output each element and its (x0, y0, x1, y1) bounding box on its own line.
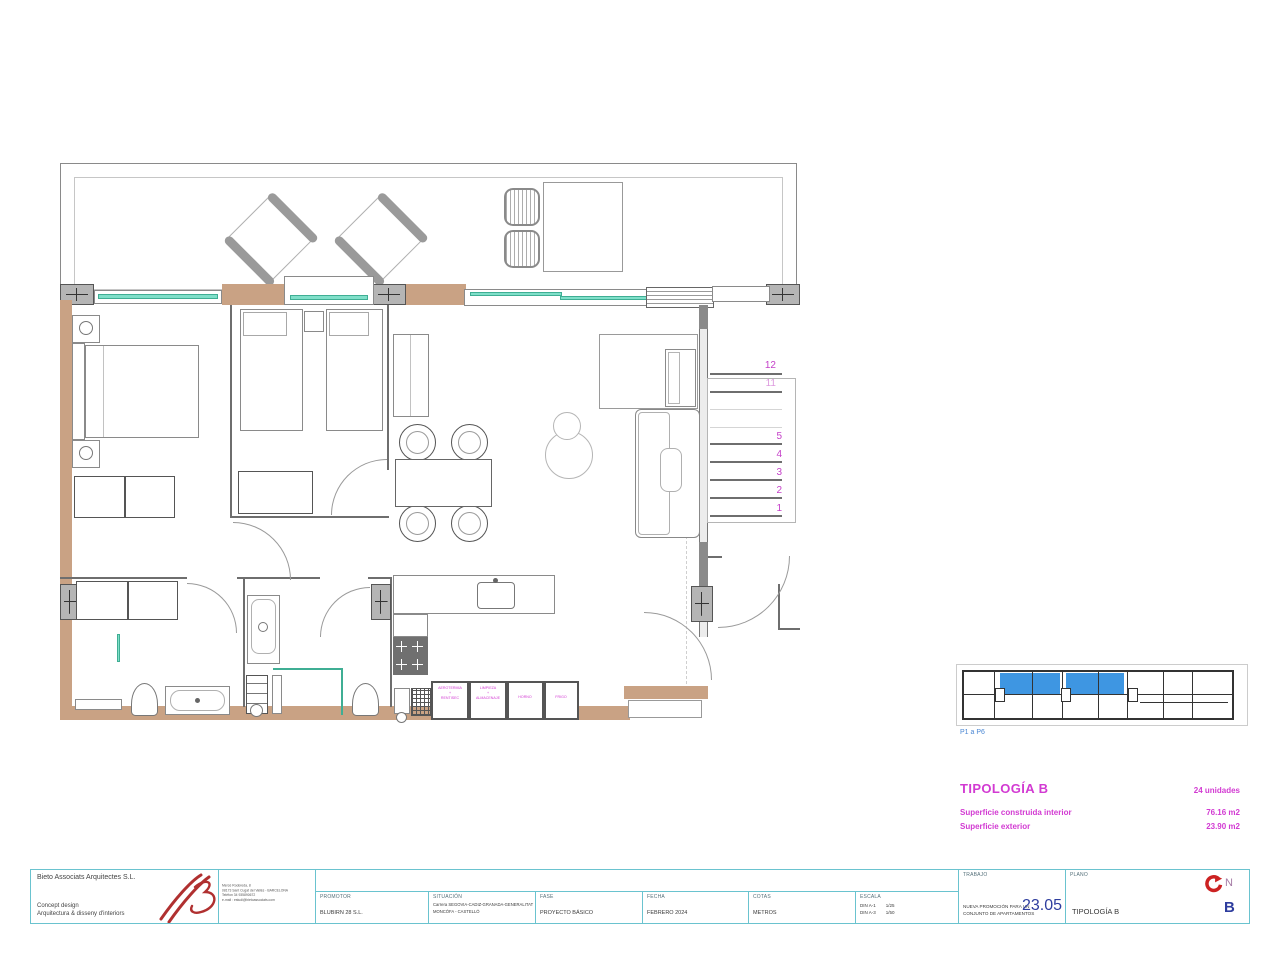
stair-tread (710, 373, 782, 375)
cooktop (393, 637, 428, 675)
title-block-divider (315, 869, 316, 924)
drawing-sheet: 12 11 5 4 3 2 1 (0, 0, 1280, 960)
stair-tread (710, 409, 782, 410)
dining-chair (399, 505, 436, 542)
door-arc (233, 522, 291, 580)
architect-signature (155, 871, 221, 923)
door-arc (320, 587, 370, 637)
surface-value: 23.90 m2 (1160, 822, 1240, 831)
field-label: ESCALA (860, 894, 881, 900)
partition-wall (387, 305, 389, 470)
title-block-divider (428, 891, 429, 924)
kitchen-counter (393, 614, 428, 637)
field-value: METROS (753, 909, 777, 917)
typology-title: TIPOLOGÍA B (960, 781, 1048, 796)
cabinet-divider (410, 335, 411, 416)
window-glazing (98, 294, 218, 299)
surface-label: Superficie exterior (960, 822, 1030, 831)
pillow (243, 312, 287, 336)
lamp (79, 321, 93, 335)
appliance-label: AEROTERMIA + RENTISEC (432, 686, 468, 701)
toilet (131, 683, 158, 716)
field-value: PROYECTO BÁSICO (540, 909, 593, 917)
stair-tread (710, 497, 782, 499)
lamp (79, 446, 93, 460)
wardrobe (74, 476, 125, 518)
glass-partition (341, 668, 343, 715)
column-marker (372, 284, 406, 305)
burner-cross (396, 641, 407, 652)
tall-cabinet (393, 334, 429, 417)
key-plan-core (1061, 688, 1071, 702)
partition-wall (243, 579, 245, 707)
kitchen-faucet (493, 578, 498, 583)
terrace-parapet (712, 286, 770, 302)
title-block-divider (855, 891, 856, 924)
partition-wall (60, 577, 187, 579)
washbasin (250, 704, 263, 717)
appliance-box (544, 681, 579, 720)
appliance-box (507, 681, 544, 720)
field-label: COTAS (753, 894, 771, 900)
key-plan-core (1128, 688, 1138, 702)
chair-seat (458, 512, 481, 535)
title-block-divider (958, 869, 959, 924)
dining-table (395, 459, 492, 507)
terrace-chair (504, 188, 540, 226)
stair-number: 1 (758, 503, 782, 514)
stair-number: 5 (758, 431, 782, 442)
field-value: DIN A-1 1/25 DIN A-3 1/50 (860, 902, 895, 916)
door-arc (331, 459, 387, 515)
title-block-divider (315, 891, 958, 892)
stair-enclosure (707, 378, 796, 523)
burner-cross (412, 659, 423, 670)
plano-label: PLANO (1070, 872, 1088, 878)
entry-cabinet (628, 700, 702, 718)
vent-grid (411, 688, 431, 716)
plano-name: TIPOLOGÍA B (1072, 907, 1119, 916)
tv-bracket (668, 352, 680, 404)
wardrobe (238, 471, 313, 514)
stair-number: 2 (758, 485, 782, 496)
shower-drain (258, 622, 268, 632)
wardrobe (125, 476, 175, 518)
key-plan-corridor-line (1140, 702, 1228, 703)
shower-tray (75, 699, 122, 710)
key-plan-divider (1163, 672, 1164, 718)
title-block-divider (1065, 869, 1066, 924)
field-value: BLUBIRN 28 S.L. (320, 909, 363, 917)
bed-headboard (72, 343, 85, 440)
utility-box (394, 688, 410, 714)
terrace-chair (504, 230, 540, 268)
key-plan-unit-highlight (1000, 673, 1060, 694)
trabajo-number: 23.05 (1022, 897, 1062, 915)
title-block-divider (535, 891, 536, 924)
key-plan-core (995, 688, 1005, 702)
key-plan-unit-highlight (1066, 673, 1124, 694)
facade-wall (406, 284, 466, 305)
bathroom-cabinet (128, 581, 178, 620)
chair-seat (406, 431, 429, 454)
vanity-drain (195, 698, 200, 703)
kitchen-counter (393, 575, 555, 614)
coffee-table-small (553, 412, 581, 440)
bedside-cabinet (304, 311, 324, 332)
title-block-divider (642, 891, 643, 924)
stair-number: 4 (758, 449, 782, 460)
stair-number: 12 (752, 360, 776, 371)
partition-wall (368, 577, 392, 579)
company-tagline: Concept design (37, 903, 79, 909)
terrace-table (543, 182, 623, 272)
exterior-wall-entry (624, 686, 708, 699)
dining-chair (451, 424, 488, 461)
plano-code: B (1224, 899, 1235, 916)
bathroom-cabinet (76, 581, 128, 620)
field-label: FASE (540, 894, 554, 900)
field-value: FEBRERO 2024 (647, 909, 687, 917)
field-label: SITUACIÓN (433, 894, 462, 900)
partition-wall (230, 305, 232, 518)
party-wall-segment (699, 305, 708, 329)
floor-drain (396, 712, 407, 723)
stair-tread (710, 427, 782, 428)
key-plan-divider (1032, 672, 1033, 718)
key-plan-divider (1192, 672, 1193, 718)
lobby-wall (780, 628, 800, 630)
column-marker (691, 586, 713, 622)
partition-wall (230, 516, 389, 518)
stair-tread (710, 461, 782, 463)
company-tagline: Arquitectura & disseny d'interiors (37, 911, 125, 917)
company-name: Bieto Associats Arquitectes S.L. (37, 874, 135, 881)
field-label: FECHA (647, 894, 665, 900)
company-address: Mercè Rodoreda, 8 08173 Sant Cugat del V… (222, 883, 314, 902)
title-block-divider (748, 891, 749, 924)
key-plan-caption: P1 a P6 (960, 729, 985, 736)
north-label: N (1225, 877, 1233, 889)
stair-tread (710, 479, 782, 481)
party-wall-segment (699, 542, 708, 590)
key-plan-divider (1098, 672, 1099, 718)
chair-seat (458, 431, 481, 454)
toilet (352, 683, 379, 716)
dining-chair (399, 424, 436, 461)
door-arc (187, 583, 237, 633)
stair-tread (710, 515, 782, 517)
sliding-door-glazing (470, 292, 562, 296)
appliance-label: FRIGO (543, 695, 579, 700)
exterior-wall-left (60, 300, 72, 710)
stair-tread (710, 443, 782, 445)
terrace-inner-outline (74, 177, 783, 290)
pillow (329, 312, 369, 336)
burner-cross (412, 641, 423, 652)
window-glazing (290, 295, 368, 300)
window-frame (284, 276, 374, 305)
surface-label: Superficie construida interior (960, 808, 1072, 817)
north-arrow-icon (1203, 874, 1223, 894)
kitchen-sink (477, 582, 515, 609)
facade-wall (222, 284, 284, 305)
sliding-door-glazing (560, 296, 652, 300)
chair-seat (406, 512, 429, 535)
bed-fold-line (103, 346, 104, 437)
towel-rail (117, 634, 120, 662)
appliance-label: LIMPIEZA + ALMACENAJE (470, 686, 506, 701)
surface-value: 76.16 m2 (1160, 808, 1240, 817)
stair-tread (710, 391, 782, 393)
appliance-label: HORNO (507, 695, 543, 700)
trabajo-label: TRABAJO (963, 872, 987, 878)
column-marker (371, 584, 391, 620)
stair-number: 3 (758, 467, 782, 478)
dining-chair (451, 505, 488, 542)
shelf-slim (272, 675, 282, 714)
stair-number: 11 (752, 378, 776, 389)
field-label: PROMOTOR (320, 894, 351, 900)
typology-units: 24 unidades (1140, 786, 1240, 795)
glass-partition (273, 668, 343, 670)
column-marker (766, 284, 800, 305)
field-value: Carrera SEGOVIA-CADIZ-GRANADA-GENERALITA… (433, 902, 533, 915)
sofa-cushion (660, 448, 682, 492)
burner-cross (396, 659, 407, 670)
